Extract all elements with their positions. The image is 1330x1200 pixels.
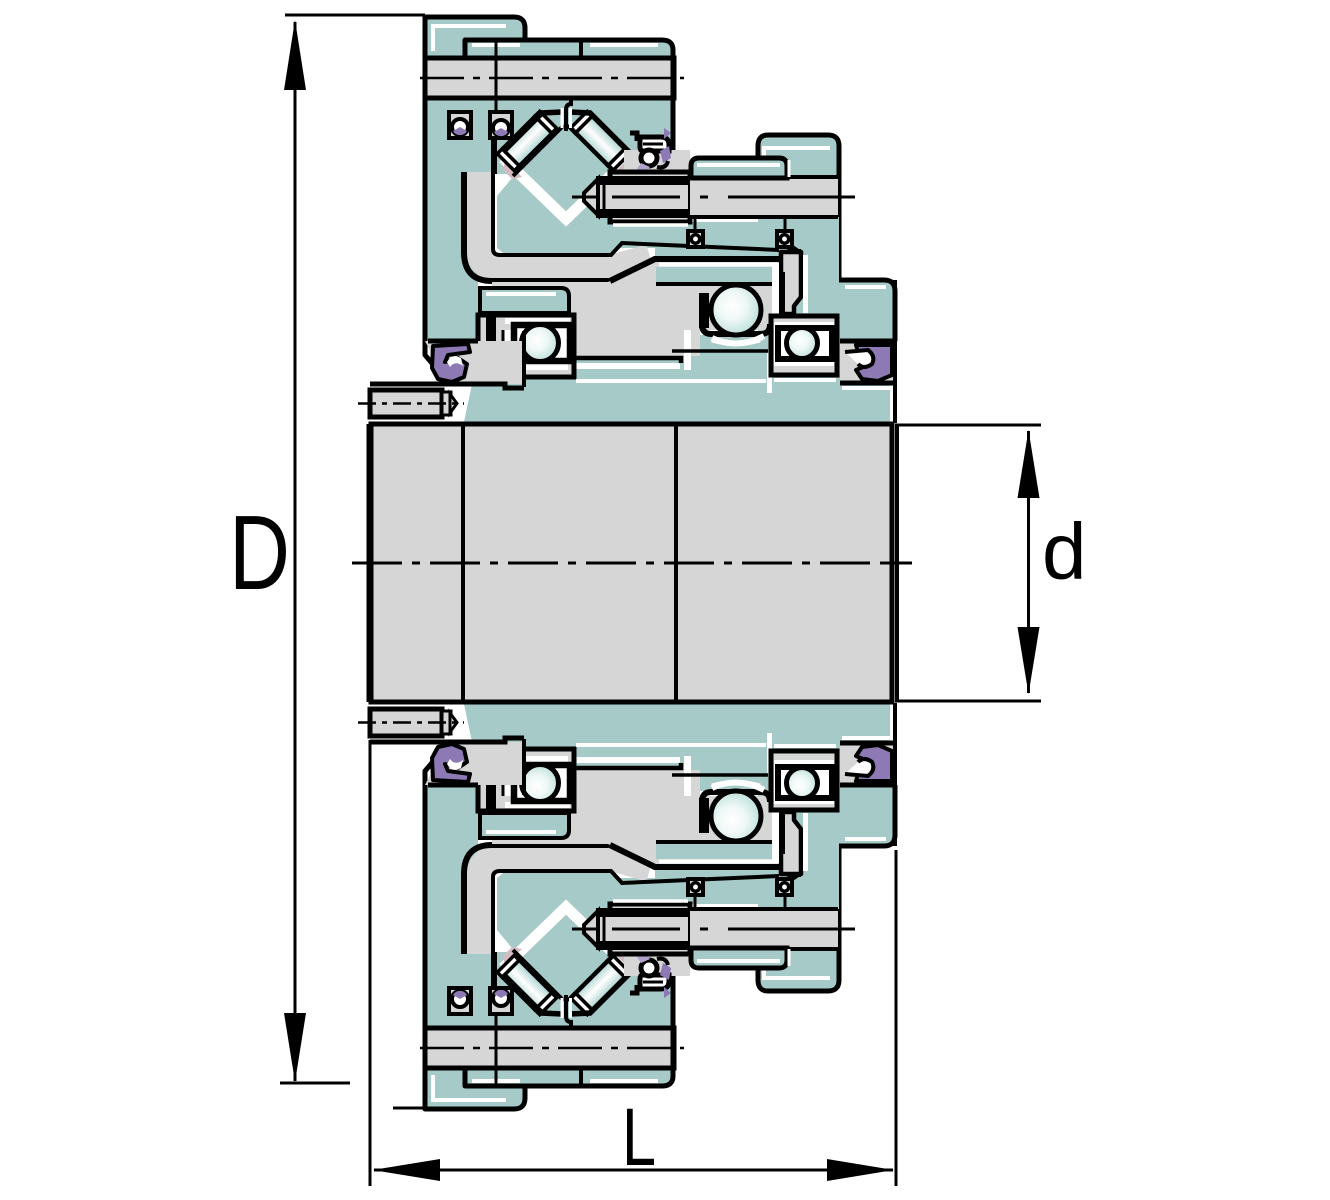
svg-text:L: L bbox=[622, 1092, 656, 1183]
svg-text:D: D bbox=[229, 494, 290, 612]
svg-text:d: d bbox=[1042, 507, 1087, 596]
